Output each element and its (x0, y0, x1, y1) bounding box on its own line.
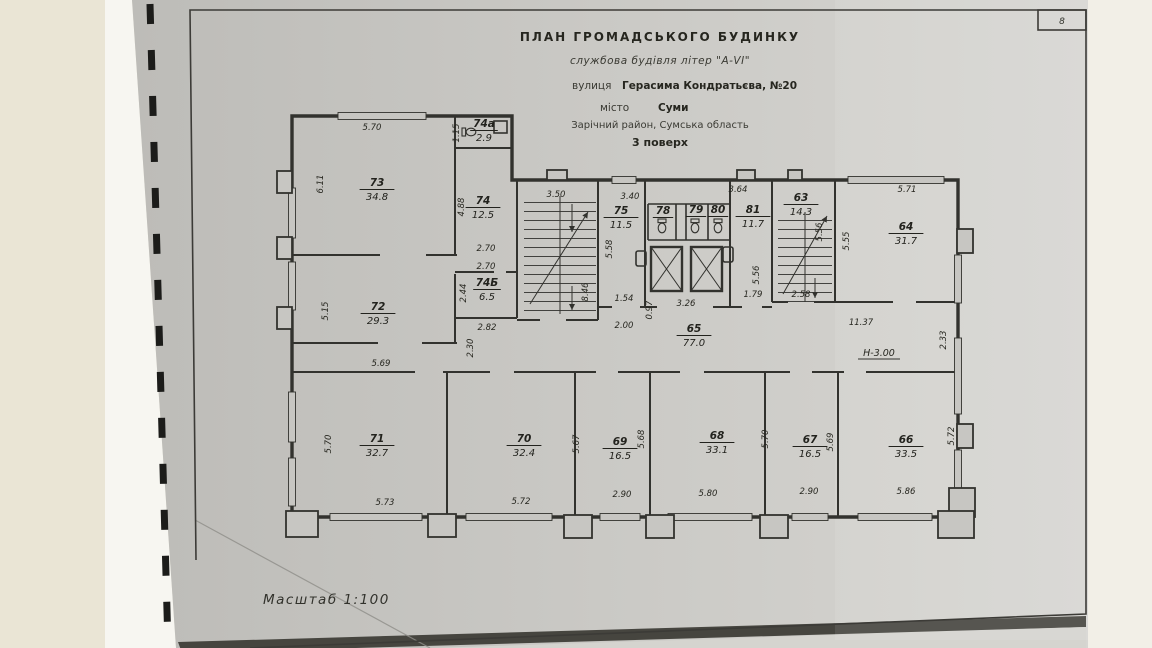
dim-label: 2.44 (459, 284, 469, 303)
street-value: Герасима Кондратьєва, №20 (622, 80, 797, 92)
room-label-78: 78 (653, 205, 673, 218)
dim-label: 5.56 (815, 222, 825, 242)
svg-text:34.8: 34.8 (366, 192, 388, 203)
floor-line: 3 поверх (632, 136, 688, 149)
svg-text:78: 78 (656, 205, 671, 217)
svg-text:79: 79 (689, 204, 704, 216)
dim-label: 4.88 (457, 197, 467, 217)
dim-label: 5.70 (363, 123, 382, 133)
svg-text:11.5: 11.5 (610, 220, 632, 231)
table-surface-right (1088, 0, 1152, 648)
svg-text:71: 71 (370, 433, 385, 445)
photo-of-floor-plan: 8 ПЛАН ГРОМАДСЬКОГО БУДИНКУ службова буд… (0, 0, 1152, 648)
dim-label: 2.70 (477, 262, 496, 272)
svg-text:11.7: 11.7 (742, 219, 765, 230)
dim-label: 5.86 (897, 487, 917, 497)
svg-text:74а: 74а (473, 118, 495, 130)
svg-text:16.5: 16.5 (799, 449, 821, 460)
dim-label: 5.72 (947, 427, 957, 446)
dim-label: 5.80 (699, 489, 718, 499)
svg-text:65: 65 (687, 323, 702, 335)
dim-label: 5.56 (752, 265, 762, 285)
room-label-80: 80 (708, 204, 728, 217)
dim-label: 5.67 (572, 434, 582, 454)
svg-text:32.7: 32.7 (366, 448, 389, 459)
dim-label: 3.64 (729, 185, 748, 195)
svg-text:75: 75 (614, 205, 629, 217)
dim-label: 1.54 (615, 294, 634, 304)
dim-label: 5.70 (324, 435, 334, 454)
svg-text:64: 64 (899, 221, 914, 233)
svg-text:31.7: 31.7 (895, 236, 918, 247)
svg-text:6.5: 6.5 (479, 292, 495, 303)
dim-label: 5.71 (898, 185, 917, 195)
dim-label: 2.82 (478, 323, 497, 333)
dim-label: 5.73 (376, 498, 395, 508)
page-title: ПЛАН ГРОМАДСЬКОГО БУДИНКУ (520, 30, 800, 44)
dim-label: 8.46 (581, 282, 591, 302)
dim-label: 5.69 (372, 359, 391, 369)
dim-label: 2.00 (615, 321, 634, 331)
svg-text:81: 81 (746, 204, 761, 216)
svg-text:67: 67 (803, 434, 818, 446)
svg-text:80: 80 (711, 204, 726, 216)
svg-text:32.4: 32.4 (513, 448, 535, 459)
svg-text:74: 74 (476, 195, 491, 207)
dim-label: 2.90 (613, 490, 632, 500)
dim-label: 1.79 (744, 290, 763, 300)
svg-text:33.5: 33.5 (895, 449, 917, 460)
dim-label: 3.26 (677, 299, 697, 309)
svg-text:74Б: 74Б (476, 277, 499, 289)
svg-text:72: 72 (371, 301, 386, 313)
city-prefix: місто (600, 102, 629, 114)
dim-label: 5.68 (637, 429, 647, 449)
dim-label: 5.15 (321, 302, 331, 321)
svg-text:73: 73 (370, 177, 385, 189)
svg-text:14.3: 14.3 (790, 207, 812, 218)
district-line: Зарічний район, Сумська область (571, 119, 749, 131)
street-prefix: вулиця (572, 80, 611, 92)
svg-text:2.9: 2.9 (476, 133, 492, 144)
dim-label: 3.40 (621, 192, 640, 202)
dim-label: 3.50 (547, 190, 566, 200)
subtitle-building: службова будівля літер "А-VI" (570, 55, 750, 67)
dim-label: 2.30 (466, 339, 476, 358)
svg-text:77.0: 77.0 (683, 338, 705, 349)
svg-text:70: 70 (517, 433, 532, 445)
dim-label: 2.70 (477, 244, 496, 254)
dim-label: 5.70 (761, 430, 771, 449)
dim-label: 5.69 (826, 433, 836, 452)
dim-label: 5.55 (842, 232, 852, 251)
svg-text:16.5: 16.5 (609, 451, 631, 462)
svg-text:12.5: 12.5 (472, 210, 494, 221)
height-label: Н-3.00 (863, 348, 895, 359)
dim-label: 2.33 (939, 331, 949, 350)
dim-label: 2.58 (792, 290, 812, 300)
svg-text:33.1: 33.1 (706, 445, 728, 456)
svg-text:29.3: 29.3 (367, 316, 389, 327)
svg-text:69: 69 (613, 436, 628, 448)
dim-label: 0.97 (645, 300, 655, 320)
dim-label: 5.72 (512, 497, 531, 507)
dim-label: 11.37 (849, 318, 874, 328)
dim-label: 6.11 (316, 175, 326, 194)
dim-label: 2.90 (800, 487, 819, 497)
city-value: Суми (658, 102, 689, 114)
dim-label: 5.58 (605, 239, 615, 259)
svg-text:63: 63 (794, 192, 809, 204)
svg-text:68: 68 (710, 430, 725, 442)
scale-label: Масштаб 1:100 (263, 592, 390, 608)
floor-plan-drawing: 8 ПЛАН ГРОМАДСЬКОГО БУДИНКУ службова буд… (0, 0, 1152, 648)
sheet-number: 8 (1059, 17, 1065, 27)
room-label-79: 79 (686, 204, 706, 217)
svg-text:66: 66 (899, 434, 914, 446)
dim-label: 1.15 (452, 124, 462, 143)
